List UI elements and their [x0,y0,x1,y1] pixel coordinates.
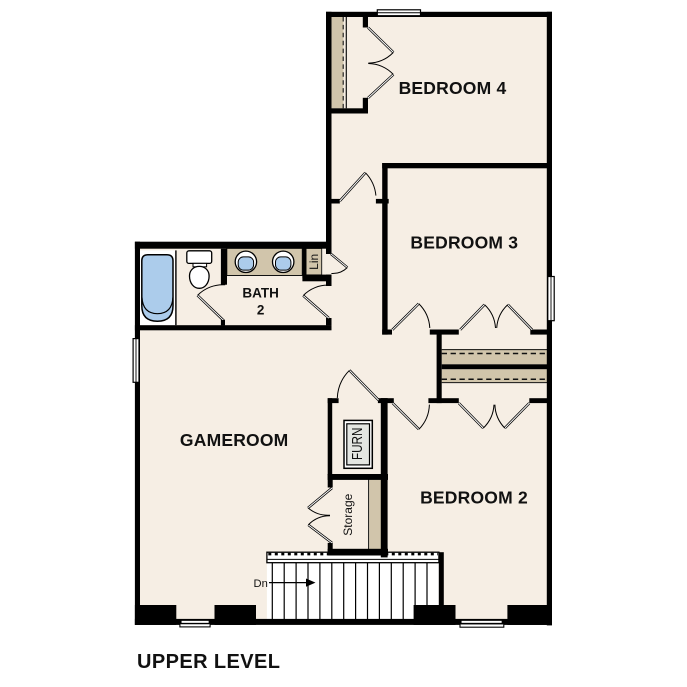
svg-text:Storage: Storage [341,493,355,535]
svg-text:UPPER LEVEL: UPPER LEVEL [137,651,280,673]
svg-text:GAMEROOM: GAMEROOM [180,430,289,450]
svg-text:2: 2 [257,302,265,317]
svg-text:BEDROOM 4: BEDROOM 4 [399,78,507,98]
svg-text:BATH: BATH [242,285,279,300]
svg-text:BEDROOM 3: BEDROOM 3 [410,233,518,253]
svg-text:Lin: Lin [307,254,321,270]
svg-text:FURN: FURN [350,428,366,461]
svg-text:Dn: Dn [254,578,268,590]
svg-text:BEDROOM 2: BEDROOM 2 [420,488,528,508]
